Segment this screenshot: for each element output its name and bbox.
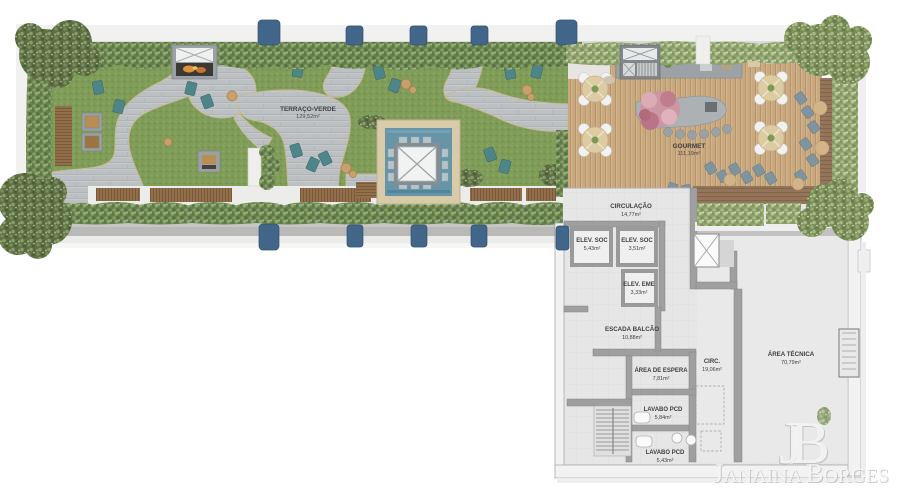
svg-text:3,33m²: 3,33m² — [631, 290, 648, 296]
svg-text:ÁREA DE ESPERA: ÁREA DE ESPERA — [634, 367, 688, 374]
svg-text:ELEV. EME: ELEV. EME — [623, 282, 654, 288]
svg-text:CIRC.: CIRC. — [704, 359, 721, 365]
svg-text:111,19m²: 111,19m² — [678, 151, 701, 157]
svg-text:ÁREA TÉCNICA: ÁREA TÉCNICA — [768, 350, 815, 358]
svg-text:10,88m²: 10,88m² — [622, 335, 642, 341]
svg-text:3,51m²: 3,51m² — [629, 246, 646, 252]
svg-text:ESCADA BALCÃO: ESCADA BALCÃO — [605, 326, 659, 333]
svg-text:LAVABO PCD: LAVABO PCD — [646, 450, 685, 456]
svg-text:5,43m²: 5,43m² — [657, 458, 674, 464]
svg-text:7,81m²: 7,81m² — [653, 376, 670, 382]
svg-text:ELEV. SOC: ELEV. SOC — [621, 238, 653, 244]
svg-text:GOURMET: GOURMET — [673, 143, 706, 150]
svg-text:5,43m²: 5,43m² — [584, 246, 601, 252]
svg-text:LAVABO PCD: LAVABO PCD — [644, 407, 683, 413]
svg-text:TERRAÇO-VERDE: TERRAÇO-VERDE — [280, 106, 336, 113]
svg-text:19,06m²: 19,06m² — [702, 367, 722, 373]
svg-text:5,84m²: 5,84m² — [655, 415, 672, 421]
svg-text:129,52m²: 129,52m² — [296, 114, 320, 120]
svg-text:14,77m²: 14,77m² — [621, 212, 641, 218]
svg-text:CIRCULAÇÃO: CIRCULAÇÃO — [610, 203, 652, 210]
svg-text:ELEV. SOC: ELEV. SOC — [576, 238, 608, 244]
svg-text:70,79m²: 70,79m² — [781, 360, 801, 366]
